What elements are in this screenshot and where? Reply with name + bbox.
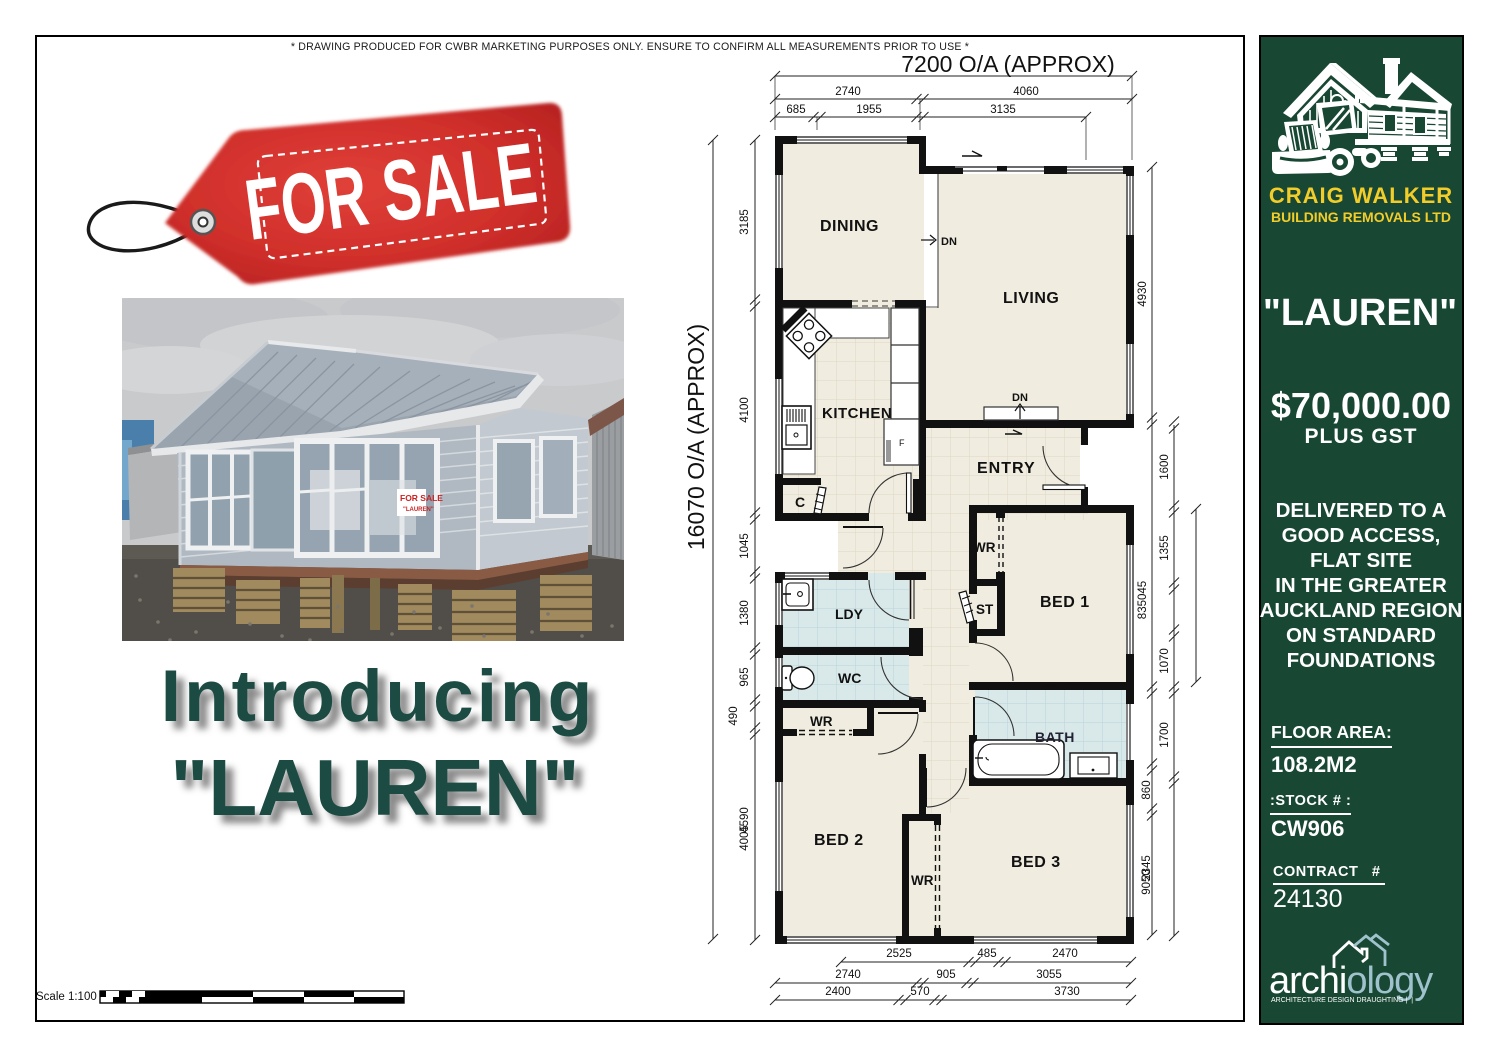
svg-text:ARCHITECTURE DESIGN DRAUGHTING: ARCHITECTURE DESIGN DRAUGHTING | | — [1271, 997, 1413, 1004]
svg-text:archiology: archiology — [1269, 960, 1433, 1002]
